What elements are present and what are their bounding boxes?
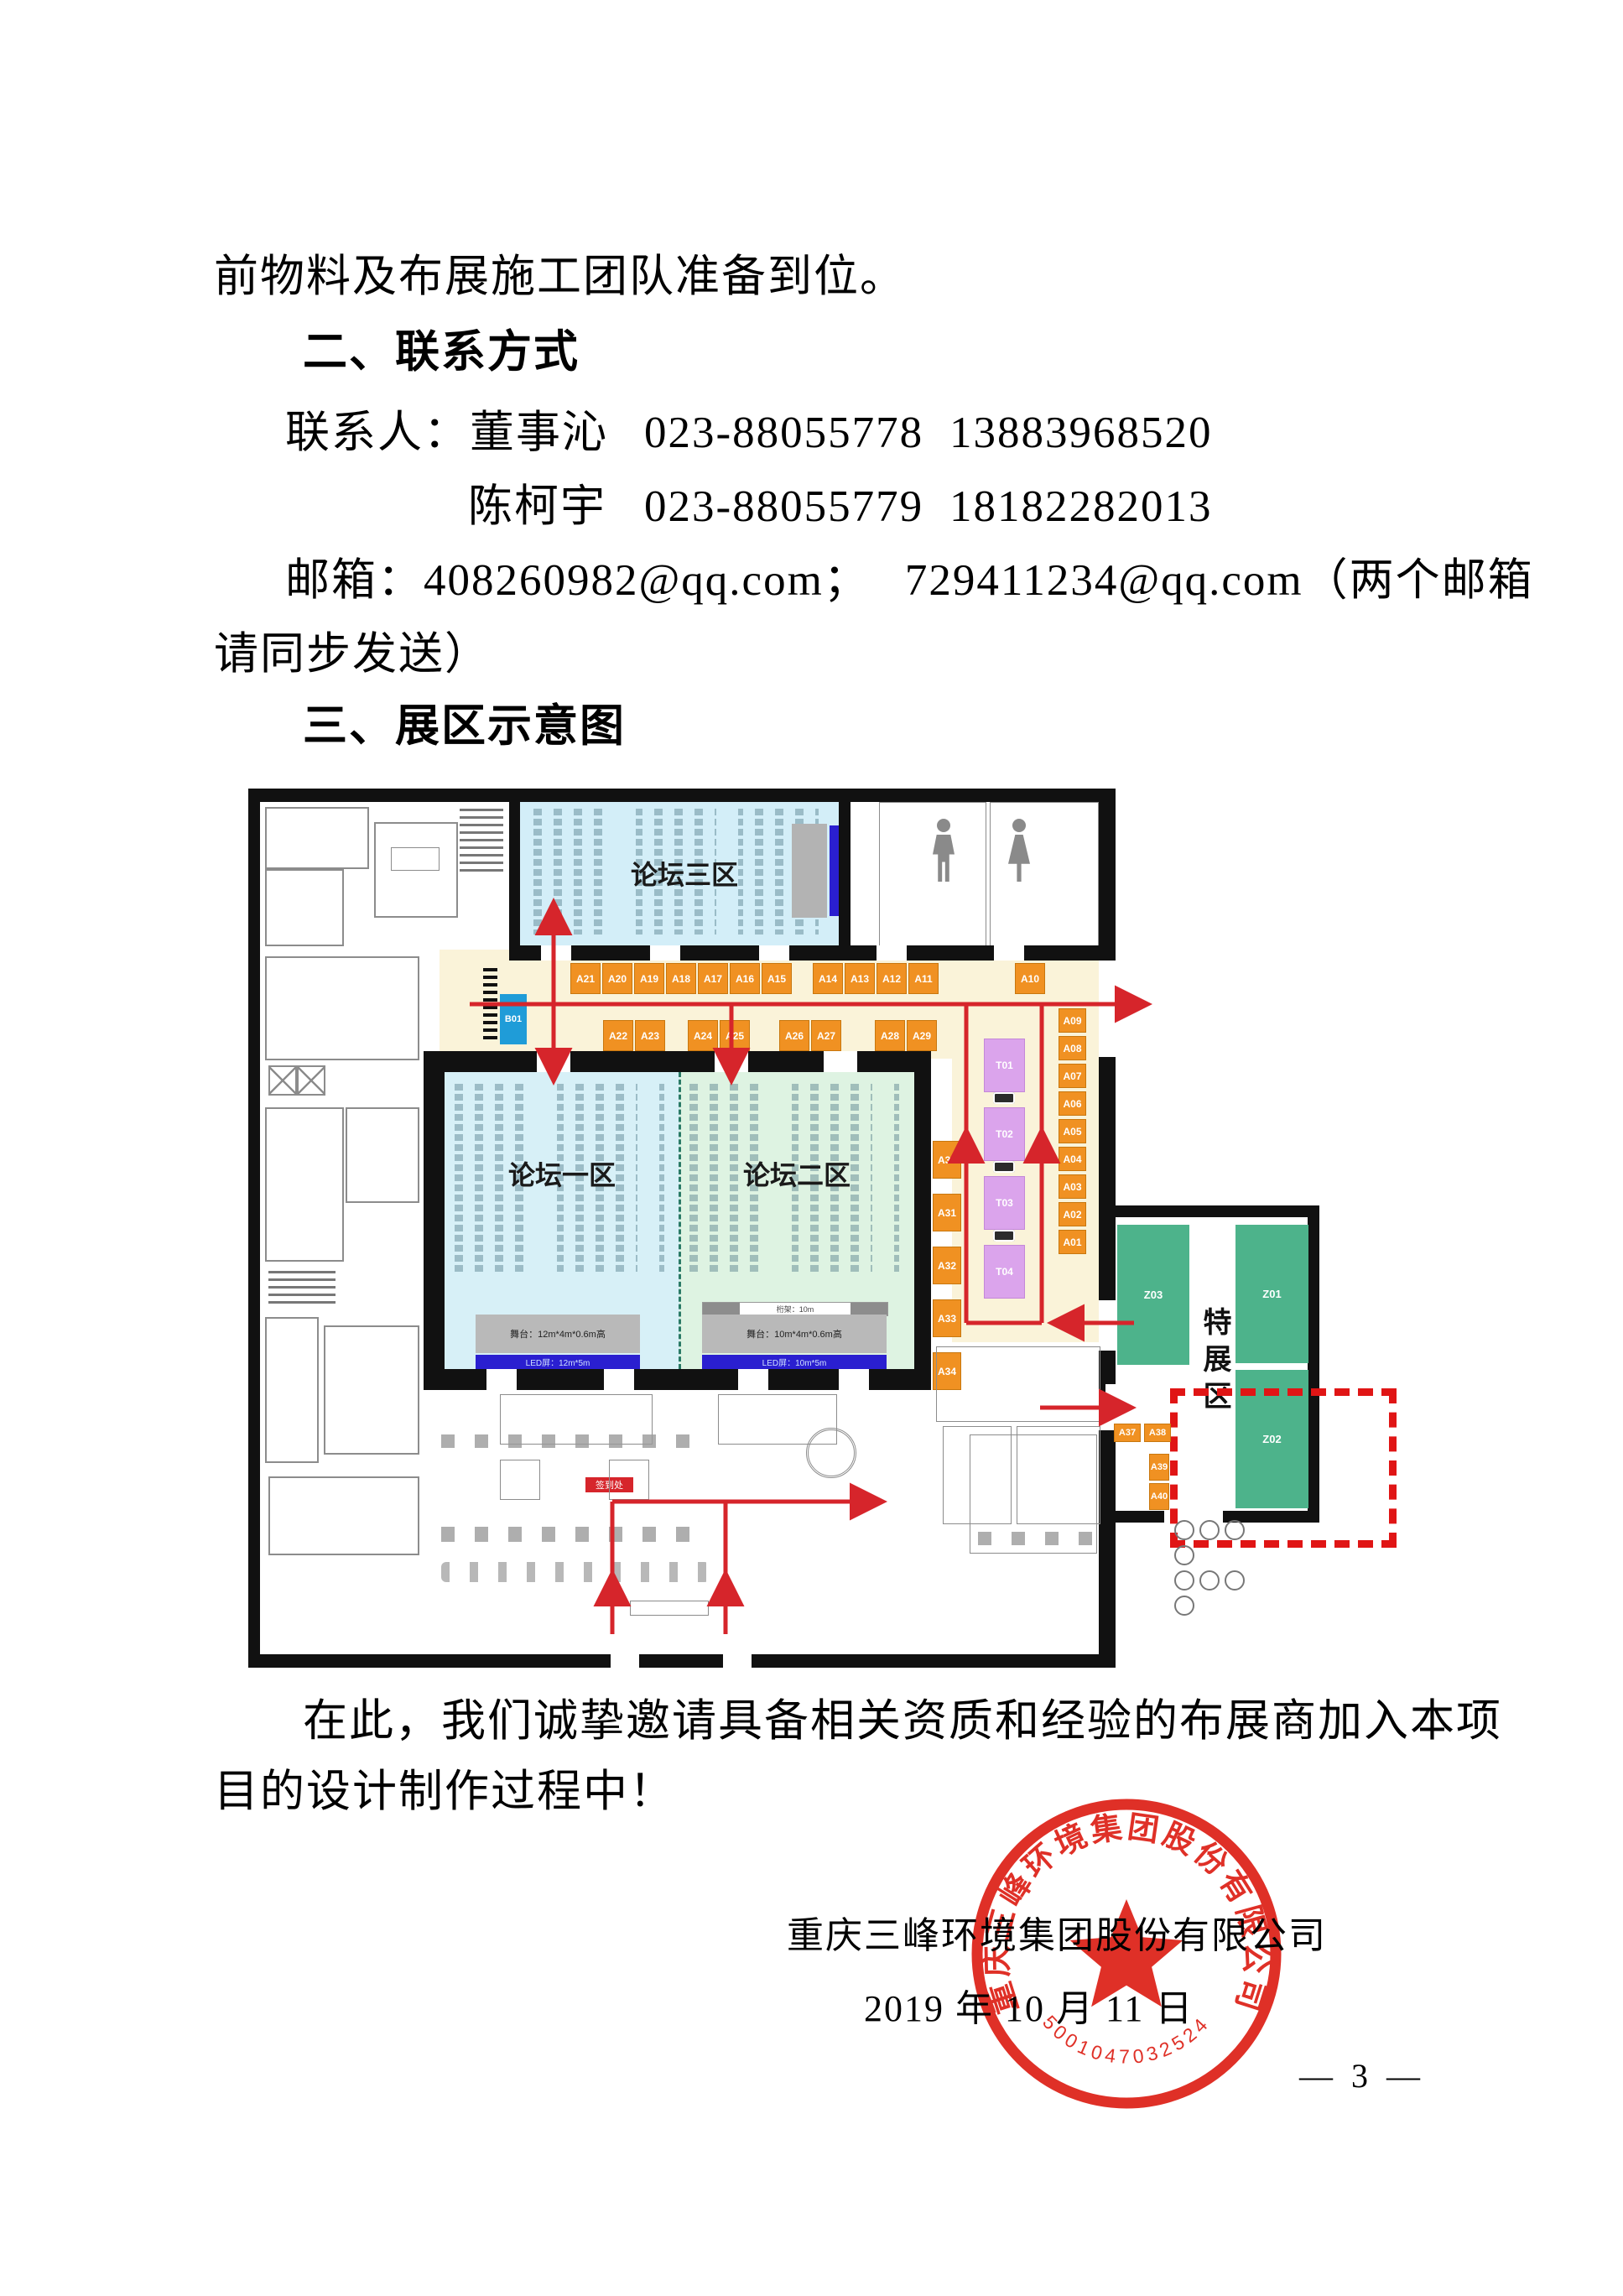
- booth-A27: A27: [811, 1020, 841, 1051]
- booth-A16: A16: [730, 963, 760, 994]
- email-line-2: 请同步发送）: [214, 629, 491, 680]
- wall-bottom: [248, 1654, 1116, 1668]
- booth-A12: A12: [877, 963, 907, 994]
- contact-mobile: 18182282013: [949, 482, 1213, 533]
- cad-round-tables: [1174, 1520, 1261, 1565]
- cad-table: [609, 1460, 649, 1500]
- contact-tel: 023-88055779: [644, 482, 923, 533]
- cad-sofa-row: [441, 1527, 693, 1542]
- elevator-icon: [268, 1065, 297, 1096]
- svg-text:5001047032524: 5001047032524: [1038, 2011, 1215, 2067]
- cad-table: [500, 1460, 540, 1500]
- booth-row-top-2: A14A13A12A11: [813, 963, 939, 994]
- booth-A17: A17: [698, 963, 728, 994]
- cad-sofa-row: [978, 1532, 1095, 1545]
- zone-forum3-label: 论坛三区: [584, 854, 785, 893]
- cad-room: [324, 1325, 419, 1455]
- booth-A39: A39: [1149, 1454, 1169, 1481]
- booth-A08: A08: [1059, 1036, 1086, 1060]
- booth-A25: A25: [720, 1020, 750, 1051]
- booth-A32: A32: [933, 1247, 961, 1284]
- wall-under-forum3: [509, 945, 1116, 961]
- door-gap: [738, 1369, 768, 1390]
- booth-A31: A31: [933, 1194, 961, 1231]
- cad-room: [936, 1346, 1100, 1422]
- booth-A37: A37: [1114, 1424, 1141, 1442]
- booth-T02: T02: [984, 1107, 1025, 1161]
- wall-left: [248, 789, 260, 1668]
- booth-A07: A07: [1059, 1064, 1086, 1088]
- cad-room: [265, 869, 344, 946]
- booth-row-bottom-2: A24A25: [688, 1020, 750, 1051]
- entrance-door-gap: [723, 1654, 752, 1668]
- company-seal-stamp: 重庆三峰环境集团股份有限公司 5001047032524: [965, 1792, 1288, 2116]
- zone-forum2-label: 论坛二区: [696, 1154, 897, 1193]
- entrance-door-gap: [611, 1654, 639, 1668]
- door-gap: [759, 945, 789, 961]
- intro-tail-line: 前物料及布展施工团队准备到位。: [214, 252, 906, 303]
- booth-A20: A20: [602, 963, 632, 994]
- cad-round-tables: [1174, 1570, 1261, 1616]
- cad-chair-row: [441, 1562, 710, 1582]
- booth-A22: A22: [603, 1020, 633, 1051]
- booth-row-bottom-4: A28A29: [875, 1020, 937, 1051]
- cad-table: [391, 847, 440, 871]
- womens-restroom-icon: [1008, 819, 1030, 882]
- booth-Z01: Z01: [1235, 1225, 1308, 1363]
- wall-corridor-bottom: [424, 1051, 931, 1072]
- section3-heading: 三、展区示意图: [303, 701, 626, 752]
- booth-col-right: A09A08A07A06A05A04A03A02A01: [1059, 1008, 1086, 1257]
- booth-A33: A33: [933, 1299, 961, 1337]
- door-gap: [541, 945, 571, 961]
- closing-line-2: 目的设计制作过程中！: [214, 1767, 675, 1818]
- door-gap: [877, 945, 907, 961]
- booth-A11: A11: [908, 963, 939, 994]
- restroom-room-right: [990, 802, 1099, 956]
- door-gap: [650, 945, 680, 961]
- closing-line-1: 在此，我们诚挚邀请具备相关资质和经验的布展商加入本项: [303, 1696, 1502, 1747]
- booth-A10: A10: [1015, 963, 1045, 994]
- wall-forum-bottom: [424, 1369, 931, 1390]
- booth-row-annex: A37A38: [1114, 1424, 1171, 1442]
- cad-room: [346, 1107, 419, 1203]
- cad-room: [265, 956, 419, 1060]
- booth-A02: A02: [1059, 1202, 1086, 1226]
- booth-A13: A13: [845, 963, 875, 994]
- section2-heading: 二、联系方式: [303, 327, 580, 378]
- booth-A03: A03: [1059, 1174, 1086, 1199]
- zone-forum1-label: 论坛一区: [461, 1154, 663, 1193]
- cad-round-feature: [806, 1428, 856, 1478]
- mens-restroom-icon: [933, 819, 955, 882]
- forum-divider-dashed: [679, 1072, 681, 1369]
- cad-stairs: [460, 809, 503, 874]
- door-gap: [839, 1369, 869, 1390]
- forum2-stage: 舞台：10m*4m*0.6m高: [702, 1315, 887, 1353]
- booth-A04: A04: [1059, 1147, 1086, 1171]
- booth-A40: A40: [1149, 1483, 1169, 1510]
- booth-A26: A26: [779, 1020, 809, 1051]
- booth-T03: T03: [984, 1176, 1025, 1230]
- booth-A14: A14: [813, 963, 843, 994]
- door-gap: [1105, 1300, 1116, 1351]
- door-gap: [824, 1051, 857, 1072]
- booth-A09: A09: [1059, 1008, 1086, 1033]
- cad-room: [265, 807, 369, 869]
- booth-A19: A19: [634, 963, 664, 994]
- booth-A05: A05: [1059, 1119, 1086, 1143]
- cad-room: [265, 1317, 319, 1463]
- booth-A30: A30: [933, 1141, 961, 1179]
- wall-forum3-left: [509, 789, 520, 950]
- booth-A23: A23: [635, 1020, 665, 1051]
- booth-A15: A15: [762, 963, 792, 994]
- booth-A21: A21: [570, 963, 601, 994]
- cad-desk: [630, 1601, 709, 1616]
- cad-stairs: [268, 1271, 336, 1304]
- contact-mobile: 13883968520: [949, 408, 1213, 459]
- forum1-stage: 舞台：12m*4m*0.6m高: [476, 1315, 640, 1353]
- booth-col-annex: A39A40: [1149, 1454, 1169, 1512]
- cad-sofa-row: [441, 1434, 693, 1448]
- machine-icon: [993, 1230, 1015, 1242]
- door-gap: [486, 1369, 517, 1390]
- exhibition-floorplan: 论坛三区 论坛一区 论坛二区 舞台：12m*4m*0.6m高 LED屏：12m*…: [248, 789, 1451, 1669]
- wall-forum-right: [914, 1051, 931, 1390]
- door-gap: [604, 1369, 634, 1390]
- contact-name: 陈柯宇: [468, 482, 606, 533]
- booth-A28: A28: [875, 1020, 905, 1051]
- booth-row-top-1: A21A20A19A18A17A16A15: [570, 963, 792, 994]
- booth-A38: A38: [1144, 1424, 1171, 1442]
- elevator-icon: [297, 1065, 325, 1096]
- booth-B01: B01: [500, 994, 527, 1044]
- forum1-led: LED屏：12m*5m: [476, 1355, 640, 1369]
- corridor-opening: [1099, 952, 1116, 1057]
- wall-forum3-right: [839, 789, 851, 950]
- booth-A01: A01: [1059, 1230, 1086, 1254]
- door-gap: [994, 945, 1024, 961]
- booth-A24: A24: [688, 1020, 718, 1051]
- cad-room: [265, 1107, 344, 1262]
- document-page: 前物料及布展施工团队准备到位。 二、联系方式 联系人：董事沁 023-88055…: [0, 0, 1623, 2296]
- machine-icon: [993, 1092, 1015, 1104]
- annex-wall-top: [1105, 1205, 1319, 1217]
- contact-tel: 023-88055778: [644, 408, 923, 459]
- booth-row-top-3: A10: [1015, 963, 1045, 994]
- annex-wall-left: [1105, 1205, 1116, 1523]
- booth-A06: A06: [1059, 1091, 1086, 1116]
- wall-forum-left: [424, 1051, 445, 1390]
- contact-label-name: 联系人：董事沁: [285, 408, 608, 459]
- email-line: 邮箱：408260982@qq.com；729411234@qq.com（两个邮…: [285, 555, 1534, 607]
- door-gap: [537, 1051, 570, 1072]
- seal-star-icon: [1070, 1899, 1183, 2007]
- booth-T04: T04: [984, 1245, 1025, 1299]
- seal-serial-number: 5001047032524: [1038, 2011, 1215, 2067]
- booth-row-bottom-1: A22A23: [603, 1020, 665, 1051]
- booth-row-bottom-3: A26A27: [779, 1020, 841, 1051]
- booth-A29: A29: [907, 1020, 937, 1051]
- forum3-stage-panel: [792, 824, 827, 918]
- booth-T01: T01: [984, 1039, 1025, 1092]
- escalator-hatch: [483, 968, 497, 1042]
- page-number: — 3 —: [1299, 2057, 1425, 2096]
- forum2-led: LED屏：10m*5m: [702, 1355, 887, 1369]
- door-gap: [715, 1051, 748, 1072]
- booth-Z03: Z03: [1117, 1225, 1189, 1365]
- machine-icon: [993, 1161, 1015, 1173]
- booth-A18: A18: [666, 963, 696, 994]
- cad-room: [268, 1476, 419, 1555]
- wall-top: [248, 789, 1116, 802]
